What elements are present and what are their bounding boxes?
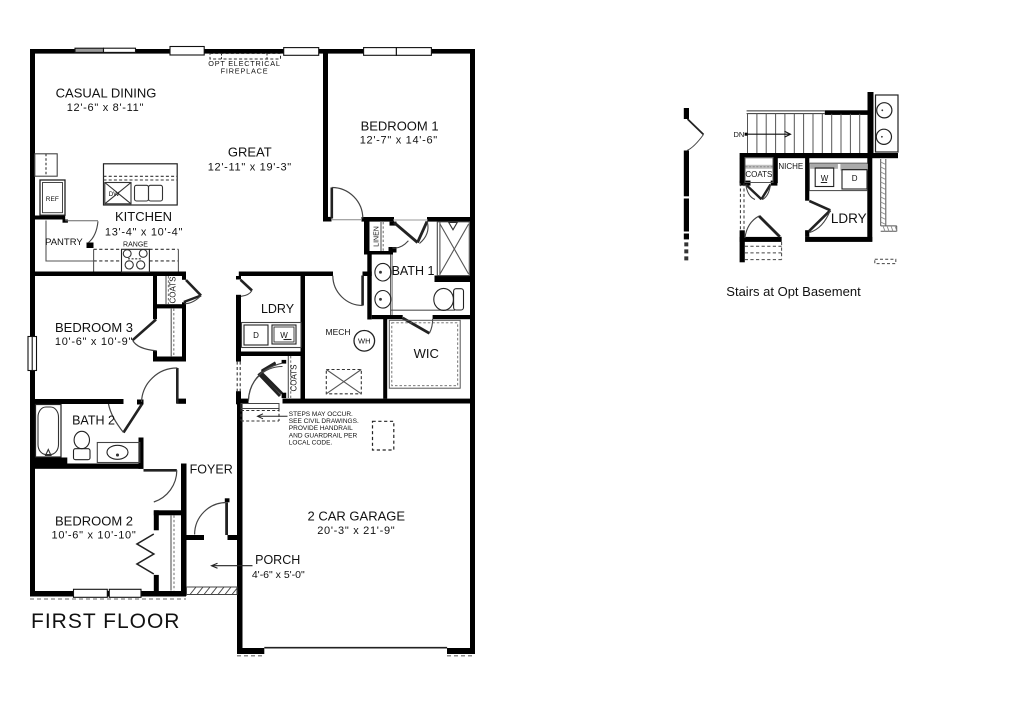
svg-text:RANGE: RANGE xyxy=(123,242,148,249)
svg-text:STEPS MAY OCCUR.: STEPS MAY OCCUR. xyxy=(289,411,353,418)
svg-text:4'-6" x 5'-0": 4'-6" x 5'-0" xyxy=(252,569,305,581)
svg-text:LOCAL CODE.: LOCAL CODE. xyxy=(289,439,333,446)
svg-text:LDRY: LDRY xyxy=(831,211,867,226)
svg-text:W: W xyxy=(821,174,829,183)
svg-text:COATS: COATS xyxy=(169,277,178,304)
svg-text:DW: DW xyxy=(109,191,121,198)
svg-text:D: D xyxy=(253,331,259,340)
svg-text:12'-11" x 19'-3": 12'-11" x 19'-3" xyxy=(208,161,292,173)
svg-text:REF: REF xyxy=(46,196,59,203)
svg-text:10'-6" x 10'-10": 10'-6" x 10'-10" xyxy=(52,530,137,542)
svg-text:BEDROOM 1: BEDROOM 1 xyxy=(361,118,439,133)
svg-text:BATH 2: BATH 2 xyxy=(72,414,115,428)
svg-text:KITCHEN: KITCHEN xyxy=(115,209,172,224)
svg-text:BATH 1: BATH 1 xyxy=(392,264,435,278)
svg-text:CASUAL DINING: CASUAL DINING xyxy=(56,86,157,101)
svg-text:SEE CIVIL DRAWINGS.: SEE CIVIL DRAWINGS. xyxy=(289,418,359,425)
svg-text:COATS: COATS xyxy=(745,170,772,179)
svg-text:12'-6" x 8'-11": 12'-6" x 8'-11" xyxy=(67,102,144,114)
svg-text:FIREPLACE: FIREPLACE xyxy=(221,66,269,75)
svg-text:MECH: MECH xyxy=(325,327,350,337)
svg-text:FOYER: FOYER xyxy=(190,463,233,477)
svg-text:20'-3" x 21'-9": 20'-3" x 21'-9" xyxy=(317,525,395,537)
svg-text:LDRY: LDRY xyxy=(261,302,295,316)
svg-text:WH: WH xyxy=(358,337,371,346)
svg-text:NICHE: NICHE xyxy=(778,162,803,171)
svg-text:W: W xyxy=(280,331,288,340)
svg-text:FIRST FLOOR: FIRST FLOOR xyxy=(31,610,180,633)
svg-text:D: D xyxy=(852,174,858,183)
svg-text:LINEN: LINEN xyxy=(374,226,381,247)
svg-text:2 CAR GARAGE: 2 CAR GARAGE xyxy=(308,509,406,524)
svg-text:DN: DN xyxy=(733,130,744,139)
svg-text:GREAT: GREAT xyxy=(228,145,272,160)
svg-text:COATS: COATS xyxy=(290,365,299,392)
svg-text:PANTRY: PANTRY xyxy=(45,237,83,248)
svg-text:13'-4" x 10'-4": 13'-4" x 10'-4" xyxy=(105,227,183,239)
svg-text:10'-6" x 10'-9": 10'-6" x 10'-9" xyxy=(55,336,133,348)
svg-text:12'-7" x 14'-6": 12'-7" x 14'-6" xyxy=(360,134,438,146)
svg-text:WIC: WIC xyxy=(414,346,439,361)
svg-text:AND GUARDRAIL PER: AND GUARDRAIL PER xyxy=(289,432,358,439)
svg-text:BEDROOM 3: BEDROOM 3 xyxy=(55,320,133,335)
svg-text:BEDROOM 2: BEDROOM 2 xyxy=(55,514,133,529)
svg-text:Stairs at Opt Basement: Stairs at Opt Basement xyxy=(726,284,861,299)
svg-text:PROVIDE HANDRAIL: PROVIDE HANDRAIL xyxy=(289,425,353,432)
svg-text:PORCH: PORCH xyxy=(255,553,300,567)
